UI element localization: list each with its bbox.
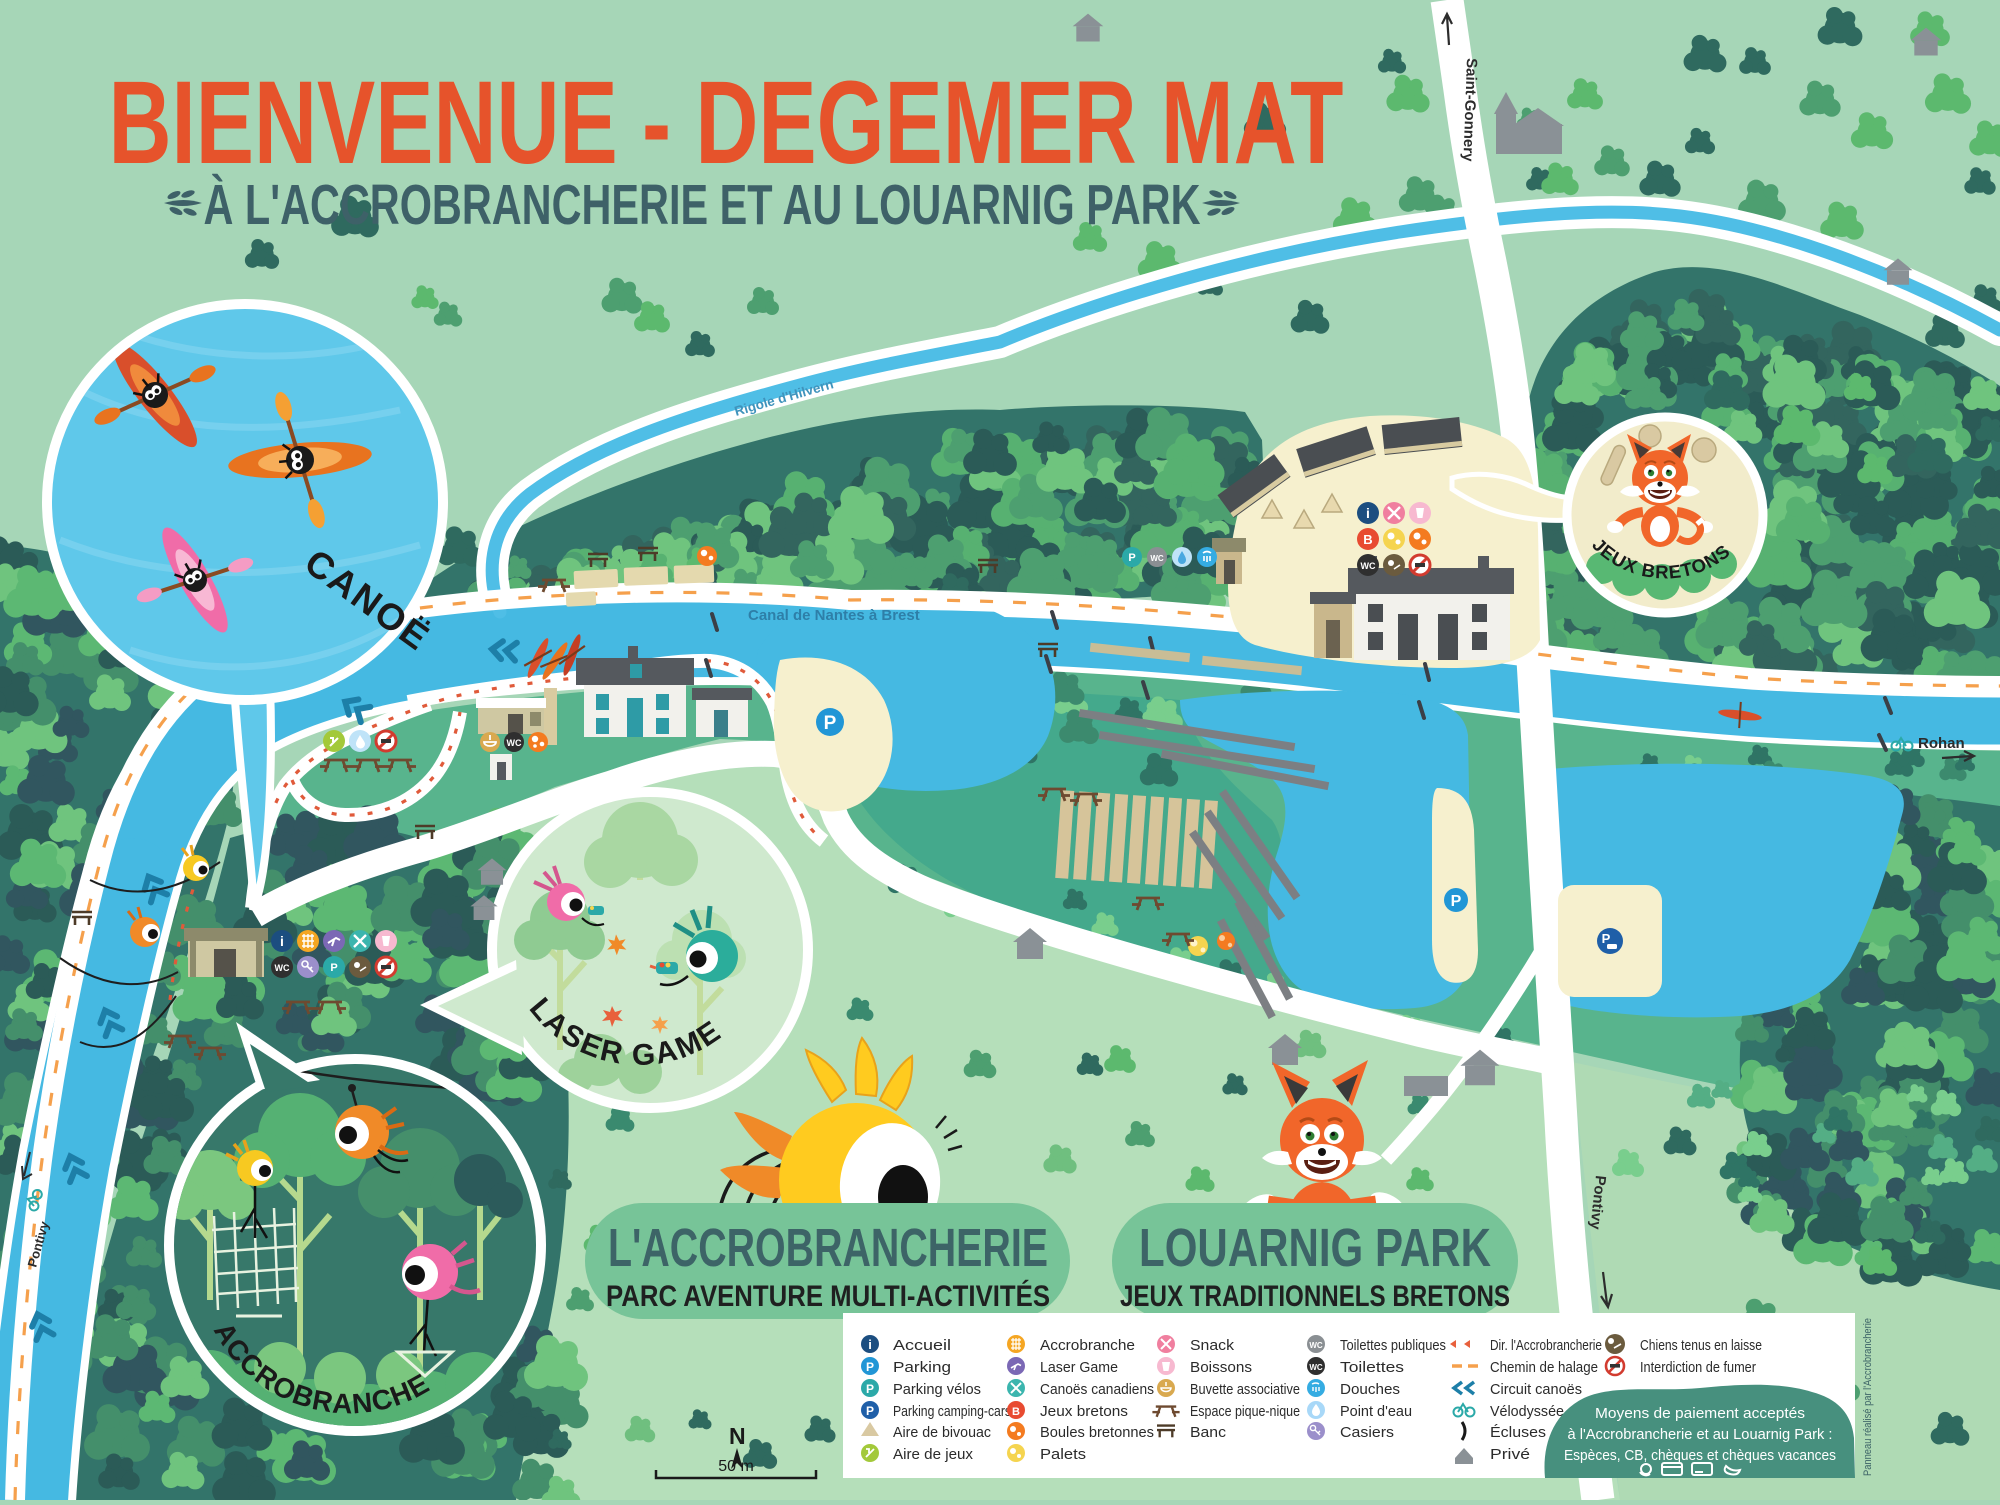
svg-text:à l'Accrobrancherie et au Loua: à l'Accrobrancherie et au Louarnig Park … xyxy=(1568,1427,1833,1443)
svg-text:WC: WC xyxy=(507,738,522,748)
svg-text:Laser Game: Laser Game xyxy=(1040,1359,1118,1376)
svg-text:WC: WC xyxy=(1150,554,1164,563)
svg-text:Toilettes: Toilettes xyxy=(1340,1359,1404,1376)
svg-text:LOUARNIG PARK: LOUARNIG PARK xyxy=(1139,1218,1491,1278)
svg-text:Aire de bivouac: Aire de bivouac xyxy=(893,1424,991,1441)
svg-text:Casiers: Casiers xyxy=(1340,1424,1394,1441)
svg-text:Boules bretonnes: Boules bretonnes xyxy=(1040,1424,1154,1441)
svg-text:Dir. l'Accrobrancherie: Dir. l'Accrobrancherie xyxy=(1490,1337,1602,1354)
svg-text:P: P xyxy=(866,1382,874,1396)
svg-text:BIENVENUE - DEGEMER MAT: BIENVENUE - DEGEMER MAT xyxy=(109,57,1344,189)
svg-text:Canoës canadiens: Canoës canadiens xyxy=(1040,1381,1154,1398)
svg-text:Chemin de halage: Chemin de halage xyxy=(1490,1359,1598,1376)
svg-text:L'ACCROBRANCHERIE: L'ACCROBRANCHERIE xyxy=(608,1218,1048,1278)
svg-text:Banc: Banc xyxy=(1190,1424,1227,1441)
svg-text:Circuit canoës: Circuit canoës xyxy=(1490,1381,1582,1398)
svg-text:50 m: 50 m xyxy=(718,1458,754,1475)
svg-text:Écluses: Écluses xyxy=(1490,1424,1546,1441)
svg-text:Espace pique-nique: Espace pique-nique xyxy=(1190,1403,1300,1420)
svg-text:P: P xyxy=(1128,552,1135,564)
svg-text:PARC AVENTURE MULTI-ACTIVITÉS: PARC AVENTURE MULTI-ACTIVITÉS xyxy=(606,1279,1050,1313)
svg-text:Buvette associative: Buvette associative xyxy=(1190,1381,1300,1398)
svg-text:Aire de jeux: Aire de jeux xyxy=(893,1446,973,1463)
svg-text:Privé: Privé xyxy=(1490,1446,1530,1463)
svg-text:WC: WC xyxy=(1361,561,1376,571)
svg-text:Canal de Nantes à Brest: Canal de Nantes à Brest xyxy=(748,607,920,624)
svg-text:P: P xyxy=(330,962,337,974)
svg-text:WC: WC xyxy=(1309,1341,1323,1350)
svg-text:Toilettes publiques: Toilettes publiques xyxy=(1340,1337,1446,1354)
svg-text:Chiens tenus en laisse: Chiens tenus en laisse xyxy=(1640,1337,1762,1354)
svg-text:Parking: Parking xyxy=(893,1359,951,1376)
svg-text:Jeux bretons: Jeux bretons xyxy=(1040,1403,1128,1420)
svg-text:P: P xyxy=(866,1404,874,1418)
svg-text:WC: WC xyxy=(1309,1363,1323,1372)
svg-text:B: B xyxy=(1363,532,1372,547)
svg-text:Vélodyssée: Vélodyssée xyxy=(1490,1403,1564,1420)
svg-text:P: P xyxy=(824,713,837,734)
svg-text:JEUX TRADITIONNELS BRETONS: JEUX TRADITIONNELS BRETONS xyxy=(1120,1280,1510,1313)
svg-text:Boissons: Boissons xyxy=(1190,1359,1252,1376)
svg-text:Rohan: Rohan xyxy=(1918,735,1965,752)
svg-text:Espèces, CB, chèques et chèque: Espèces, CB, chèques et chèques vacances xyxy=(1564,1448,1836,1464)
svg-text:Accueil: Accueil xyxy=(893,1337,951,1354)
svg-text:P: P xyxy=(866,1360,874,1374)
svg-text:Parking vélos: Parking vélos xyxy=(893,1381,981,1398)
svg-text:Saint-Gonnery: Saint-Gonnery xyxy=(1459,58,1480,163)
svg-text:Douches: Douches xyxy=(1340,1381,1400,1398)
svg-text:Snack: Snack xyxy=(1190,1337,1235,1354)
svg-text:Point d'eau: Point d'eau xyxy=(1340,1403,1412,1420)
svg-text:i: i xyxy=(1366,505,1370,521)
svg-text:B: B xyxy=(1012,1406,1020,1418)
svg-text:i: i xyxy=(280,933,284,949)
svg-text:Palets: Palets xyxy=(1040,1446,1086,1463)
svg-text:P: P xyxy=(1602,931,1611,946)
svg-text:Parking camping-cars: Parking camping-cars xyxy=(893,1403,1011,1420)
svg-text:Moyens de paiement acceptés: Moyens de paiement acceptés xyxy=(1595,1406,1805,1422)
svg-text:N: N xyxy=(729,1423,746,1449)
svg-text:À L'ACCROBRANCHERIE ET AU LOUA: À L'ACCROBRANCHERIE ET AU LOUARNIG PARK xyxy=(204,173,1201,237)
svg-text:Accrobranche: Accrobranche xyxy=(1040,1337,1135,1354)
svg-text:i: i xyxy=(868,1337,872,1352)
svg-text:Panneau réalisé par l'Accrobra: Panneau réalisé par l'Accrobrancherie xyxy=(1862,1318,1874,1476)
svg-text:Interdiction de fumer: Interdiction de fumer xyxy=(1640,1359,1756,1376)
svg-text:P: P xyxy=(1451,893,1462,910)
svg-text:WC: WC xyxy=(275,963,290,973)
